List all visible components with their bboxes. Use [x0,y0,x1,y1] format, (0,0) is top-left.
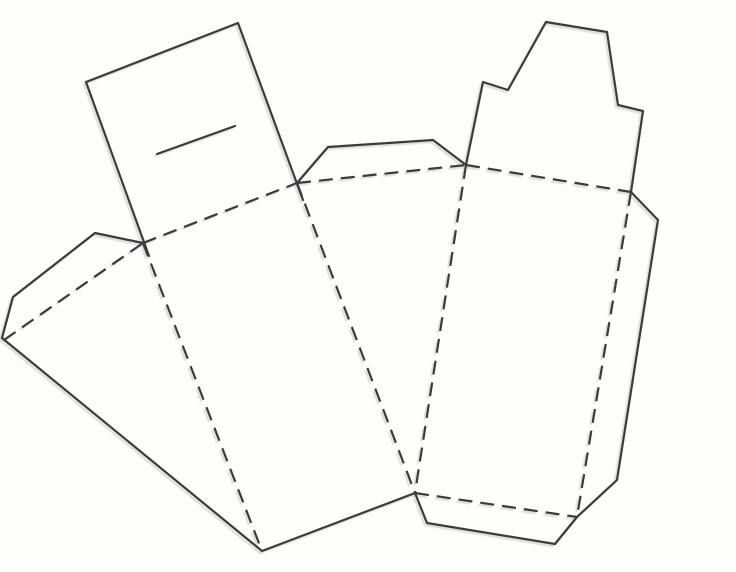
top-fold-1-fold-line [143,183,297,243]
wedge-left-cut-edge-cut-line [2,338,262,551]
wedge-fold-right-fold-line [297,183,415,493]
slot-slit-cut-line [157,126,235,154]
left-side-fold-fold-line [415,165,466,493]
carton-piece [415,22,658,544]
left-side-flap-cut-cut-line [2,233,143,338]
bottom-flap-cut-cut-line [415,493,577,544]
papercraft-template-page [0,0,736,572]
right-side-fold-fold-line [577,192,631,517]
glue-tab-right-edge-cut-line [238,23,303,200]
wedge-box-piece [2,23,631,551]
top-fold-3-fold-line [466,165,631,192]
glue-tab-top-edge-cut-line [86,23,238,82]
right-side-flap-cut-cut-line [577,192,658,517]
bottom-fold-fold-line [415,493,577,517]
middle-glue-flap-cut-cut-line [297,140,466,183]
top-fold-2-fold-line [297,165,466,183]
wedge-bottom-cut-edge-cut-line [262,493,415,551]
glue-tab-left-edge-cut-line [86,82,149,256]
box-template-diagram [0,0,736,572]
left-flap-fold-fold-line [4,243,143,340]
wedge-fold-left-fold-line [143,243,262,551]
notched-top-tab-cut-cut-line [466,22,643,192]
